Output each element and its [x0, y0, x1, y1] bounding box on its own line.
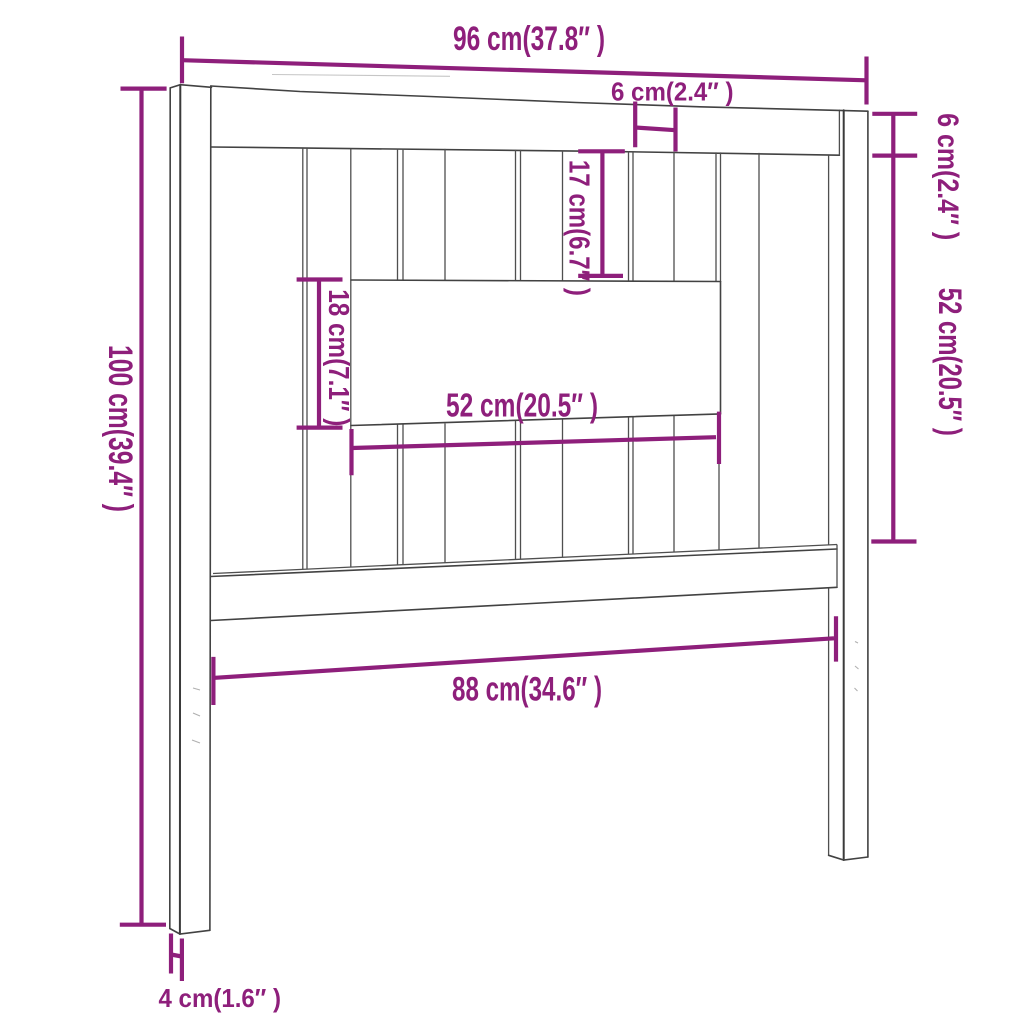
svg-text:6 cm(2.4″ ): 6 cm(2.4″ ) [611, 77, 734, 107]
svg-text:52 cm(20.5″ ): 52 cm(20.5″ ) [932, 288, 968, 436]
svg-text:17 cm(6.7″ ): 17 cm(6.7″ ) [562, 160, 594, 296]
svg-text:100 cm(39.4″ ): 100 cm(39.4″ ) [101, 345, 139, 512]
svg-text:52 cm(20.5″ ): 52 cm(20.5″ ) [446, 386, 598, 423]
svg-text:96 cm(37.8″ ): 96 cm(37.8″ ) [453, 20, 605, 58]
svg-text:18 cm(7.1″ ): 18 cm(7.1″ ) [322, 289, 354, 426]
svg-text:6 cm(2.4″ ): 6 cm(2.4″ ) [931, 113, 964, 240]
svg-text:88 cm(34.6″ ): 88 cm(34.6″ ) [452, 671, 602, 709]
svg-text:4 cm(1.6″ ): 4 cm(1.6″ ) [159, 983, 282, 1013]
